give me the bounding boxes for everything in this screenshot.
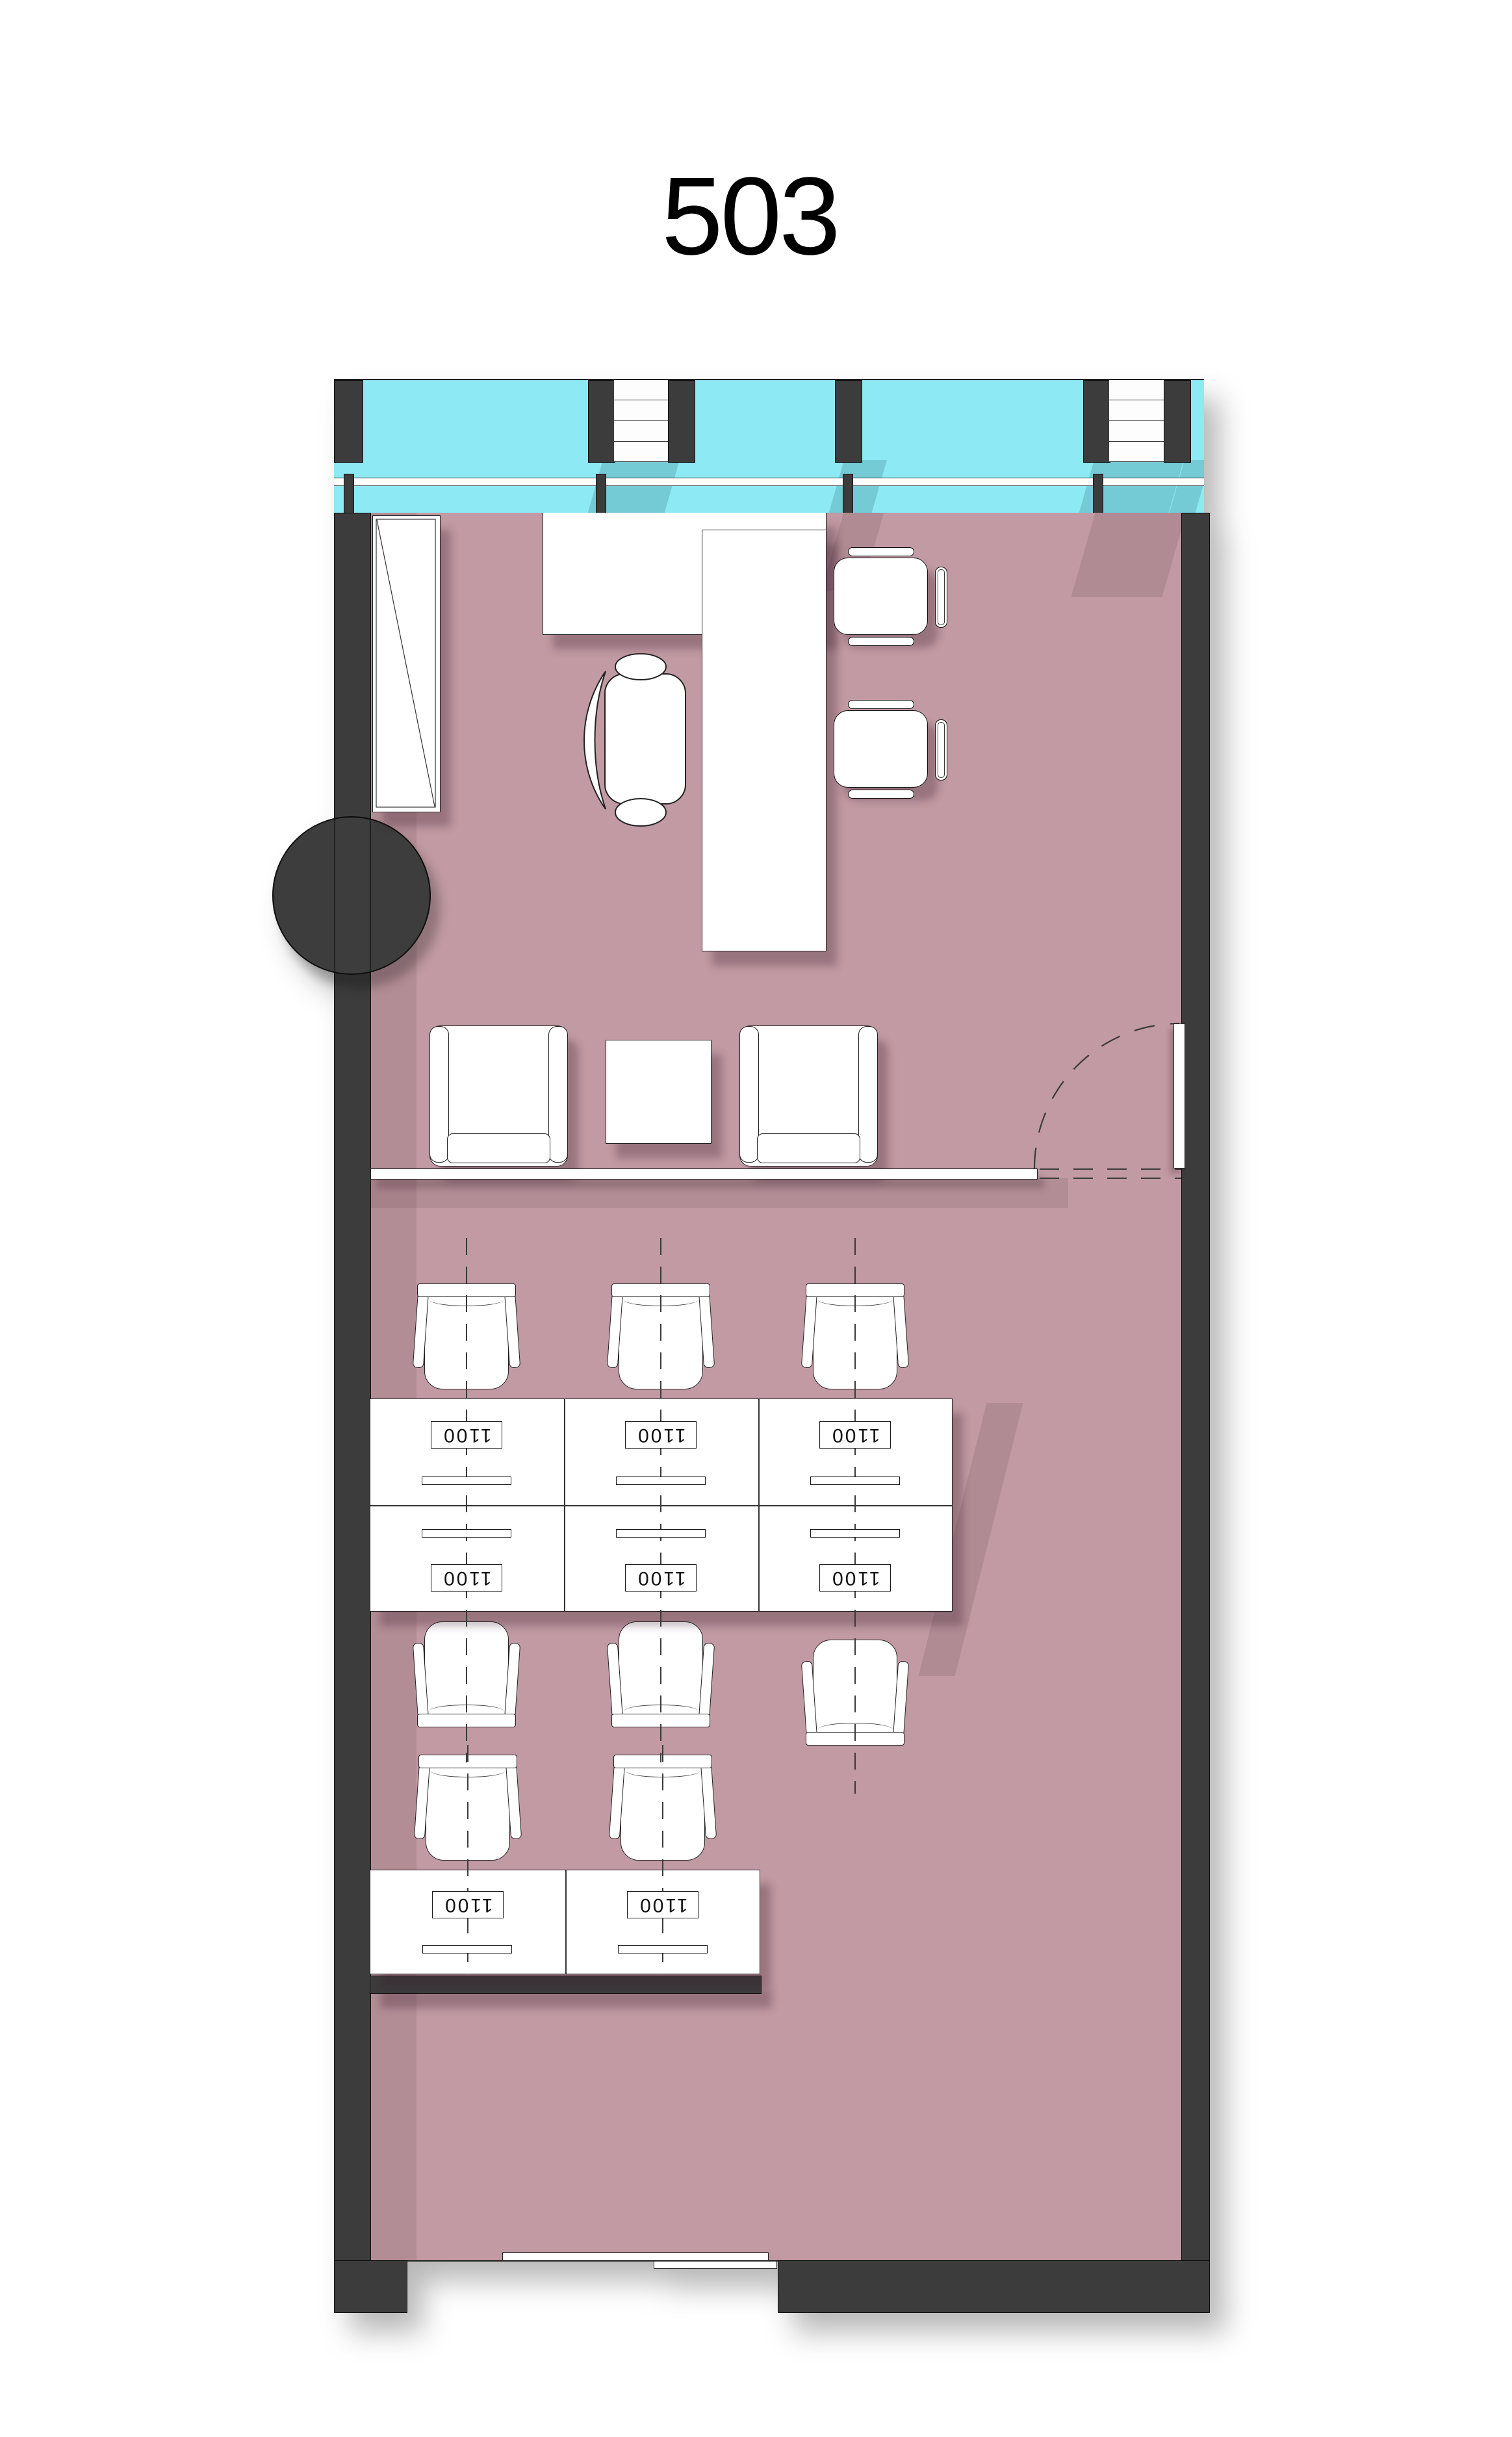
window-pillar bbox=[668, 380, 695, 463]
lounge-armchair bbox=[429, 1025, 568, 1167]
desk-label: 1100 bbox=[625, 1421, 697, 1449]
partition-wall-stub bbox=[370, 1976, 762, 1994]
desk-label: 1100 bbox=[819, 1421, 891, 1449]
window-pane-section bbox=[614, 380, 668, 462]
floor-plan: 1100 1100 1100 1100 1100 1100 bbox=[0, 0, 1512, 2437]
floor-plan-page: 503 bbox=[0, 0, 1512, 2437]
window-pillar bbox=[334, 380, 363, 463]
desk-label: 1100 bbox=[431, 1421, 502, 1449]
centerline bbox=[466, 1238, 467, 1762]
keyboard-tray bbox=[618, 1945, 708, 1953]
sliding-door-panel bbox=[654, 2261, 777, 2269]
keyboard-tray bbox=[616, 1529, 706, 1538]
door-swing-arc bbox=[1020, 1014, 1183, 1176]
window-pane-section bbox=[1109, 380, 1164, 462]
bottom-wall bbox=[778, 2260, 1210, 2313]
bottom-left-wall-stub bbox=[334, 2260, 407, 2313]
chair-armrest bbox=[848, 700, 914, 709]
cabinet-door-diagonal bbox=[373, 516, 439, 810]
keyboard-tray bbox=[422, 1476, 511, 1485]
window-mullion-strip bbox=[334, 478, 1204, 486]
desk-label: 1100 bbox=[627, 1891, 698, 1918]
tall-cabinet bbox=[372, 515, 441, 812]
keyboard-tray bbox=[422, 1945, 512, 1953]
desk-label: 1100 bbox=[432, 1891, 504, 1918]
mullion-post bbox=[1093, 474, 1103, 514]
window-pillar bbox=[835, 380, 862, 463]
wall-edge-line bbox=[334, 818, 335, 974]
mullion-post bbox=[596, 474, 606, 514]
desk-label: 1100 bbox=[431, 1564, 502, 1592]
mullion-post bbox=[344, 474, 354, 514]
lounge-armchair bbox=[739, 1025, 878, 1167]
glass-shadow bbox=[828, 460, 887, 514]
mullion-post bbox=[843, 474, 853, 514]
curtain-wall-band bbox=[334, 379, 1204, 514]
chair-armrest bbox=[429, 1026, 449, 1163]
desk-divider bbox=[565, 1870, 567, 1974]
window-pillar bbox=[1164, 380, 1191, 463]
window-pillar bbox=[588, 380, 615, 463]
sliding-door-panel bbox=[502, 2252, 769, 2261]
coffee-table bbox=[606, 1040, 711, 1144]
keyboard-tray bbox=[422, 1529, 511, 1538]
visitor-chair bbox=[834, 547, 947, 646]
executive-desk-return bbox=[702, 530, 826, 951]
door-leaf bbox=[1173, 1024, 1185, 1168]
wall-edge-line bbox=[370, 818, 371, 974]
partition-rail bbox=[370, 1168, 1038, 1180]
window-pillar bbox=[1083, 380, 1110, 463]
chair-armrest bbox=[848, 637, 914, 646]
executive-chair bbox=[572, 653, 689, 827]
chair-back bbox=[935, 567, 947, 628]
right-wall bbox=[1181, 513, 1210, 2313]
chair-armrest bbox=[848, 790, 914, 799]
desk-label: 1100 bbox=[819, 1564, 891, 1592]
desk-block-2 bbox=[370, 1870, 760, 1974]
chair-back bbox=[447, 1133, 550, 1163]
chair-back bbox=[757, 1133, 860, 1163]
chair-armrest bbox=[548, 1026, 568, 1163]
keyboard-tray bbox=[616, 1476, 706, 1485]
chair-seat bbox=[834, 710, 928, 788]
centerline bbox=[467, 1745, 468, 1974]
chair-armrest bbox=[739, 1026, 759, 1163]
chair-seat bbox=[834, 558, 928, 635]
desk-label: 1100 bbox=[625, 1564, 697, 1592]
chair-armrest bbox=[858, 1026, 878, 1163]
keyboard-tray bbox=[810, 1529, 900, 1538]
visitor-chair bbox=[834, 700, 947, 799]
left-wall bbox=[334, 513, 371, 2262]
centerline bbox=[854, 1238, 856, 1794]
centerline bbox=[662, 1745, 663, 1974]
floor-shadow bbox=[370, 1178, 1068, 1208]
opening-dashed-line bbox=[1040, 1178, 1181, 1179]
floor-shadow bbox=[1071, 513, 1181, 597]
column-circle bbox=[272, 816, 431, 975]
centerline bbox=[660, 1238, 661, 1762]
keyboard-tray bbox=[810, 1476, 900, 1485]
chair-armrest bbox=[848, 547, 914, 556]
chair-back bbox=[935, 719, 947, 780]
